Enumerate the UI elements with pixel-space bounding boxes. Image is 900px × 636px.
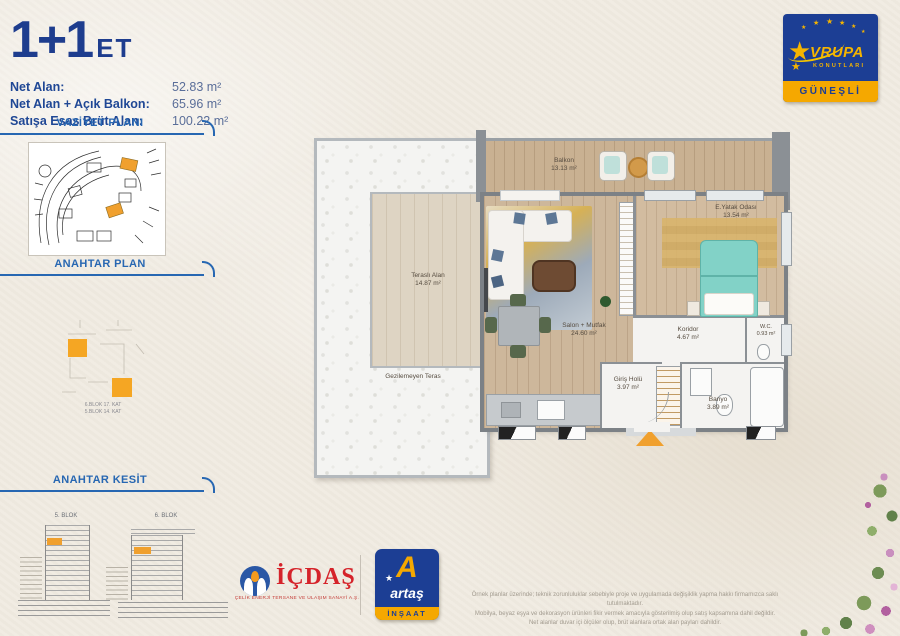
brand-name: VRUPA [810, 44, 864, 61]
star-icon: ★ [839, 19, 845, 27]
room-label: Giriş Holü 3.97 m² [602, 376, 654, 392]
section-title-anahtar-kesit: ANAHTAR KESİT [0, 474, 205, 486]
stove [501, 402, 521, 418]
section-rule [0, 490, 204, 492]
pillow [513, 212, 525, 224]
artas-sub: İNŞAAT [375, 607, 439, 620]
room-name: Giriş Holü [602, 376, 654, 384]
room-name: Koridor [653, 326, 723, 334]
icdas-name: İÇDAŞ [276, 564, 356, 591]
room-name: Salon + Mutfak [536, 322, 632, 330]
block-label-6: 6. BLOK [136, 513, 196, 519]
balcony-table [628, 157, 649, 178]
dining-table [498, 306, 540, 346]
star-icon: ★ [861, 29, 865, 35]
section-title-vaziyet: VAZİYET PLANI [0, 117, 205, 129]
chair-cushion [652, 156, 668, 174]
highlight-block-5 [106, 203, 124, 218]
icdas-tagline: ÇELİK ENERJİ TERSANE VE ULAŞIM SANAYİ A.… [234, 596, 360, 601]
room-area: 14.87 m² [378, 280, 478, 288]
avrupa-konutlari-logo: ★ ★ ★ ★ ★ ★ ★ ★ VRUPA KONUTLARI GÜNEŞLİ [783, 14, 878, 102]
key-plan-unit-1 [68, 339, 87, 357]
window-well [746, 426, 776, 440]
window-well [498, 426, 536, 440]
disclaimer: Örnek planlar üzerinde; teknik zorunlulu… [455, 591, 795, 628]
window-well [558, 426, 586, 440]
site-plan-drawing [29, 143, 165, 255]
nightstand [757, 301, 770, 316]
unit-type: 1+1 [10, 11, 92, 69]
star-icon: ★ [385, 573, 393, 584]
bathtub [750, 367, 784, 427]
section-base-6 [118, 602, 228, 618]
nightstand [687, 301, 700, 316]
brand-sub: KONUTLARI [813, 63, 865, 69]
page-title: 1+1ET [10, 10, 133, 70]
key-section: 5. BLOK 6. BLOK [18, 505, 228, 635]
bed-pillows [704, 293, 754, 315]
window [781, 212, 792, 266]
room-label: W.C. 0.93 m² [749, 324, 783, 338]
block-label-5: 5. BLOK [36, 513, 96, 519]
room-area: 13.54 m² [676, 212, 796, 220]
dining-chair [510, 345, 526, 358]
pillow [491, 249, 504, 262]
key-plan-note-line: 5.BLOK 14. KAT [58, 409, 148, 416]
room-label: Salon + Mutfak 24.60 m² [536, 322, 632, 338]
room-label: Teraslı Alan 14.87 m² [378, 272, 478, 288]
area-value: 65.96 m² [172, 97, 221, 111]
room-area: 0.93 m² [749, 331, 783, 338]
room-name: Balkon [524, 157, 604, 165]
chair-cushion [604, 156, 620, 174]
blanket-fold [701, 275, 757, 277]
room-name: E.Yatak Odası [676, 204, 796, 212]
room-area: 4.67 m² [653, 334, 723, 342]
site-plan [28, 142, 166, 256]
bed [700, 240, 758, 317]
balcony-chair [599, 151, 627, 181]
unit-type-suffix: ET [96, 33, 133, 63]
window [644, 190, 696, 201]
apartment-interior: Salon + Mutfak 24.60 m² E.Yatak Odası 13… [484, 196, 784, 428]
tv [484, 268, 488, 312]
highlight-block-6 [120, 157, 138, 171]
section-tower-5 [45, 525, 90, 600]
bathroom-sink [690, 368, 712, 396]
area-row-net-balkon: Net Alan + Açık Balkon: 65.96 m² [10, 97, 310, 114]
icdas-flame [251, 571, 259, 582]
key-plan-note-line: 6.BLOK 17. KAT [58, 402, 148, 409]
window [781, 324, 792, 356]
coffee-table [532, 260, 576, 292]
room-yatak-odasi: E.Yatak Odası 13.54 m² [633, 196, 784, 318]
room-label: Balkon 13.13 m² [524, 157, 604, 173]
room-name: Teraslı Alan [378, 272, 478, 280]
floor-labels [20, 557, 42, 601]
key-plan-note: 6.BLOK 17. KAT 5.BLOK 14. KAT [58, 402, 148, 416]
section-title-anahtar-plan: ANAHTAR PLAN [0, 258, 205, 270]
room-name: W.C. [749, 324, 783, 331]
window [706, 190, 764, 201]
star-icon: ★ [851, 23, 856, 30]
highlight-floor-5 [47, 538, 62, 545]
area-label: Net Alan: [10, 80, 64, 94]
room-label: Koridor 4.67 m² [653, 326, 723, 342]
toilet [757, 344, 770, 360]
brand-location: GÜNEŞLİ [783, 81, 878, 102]
section-tower-6 [131, 535, 183, 600]
icdas-logo-icon [240, 566, 270, 596]
room-koridor: Koridor 4.67 m² [633, 318, 745, 362]
dining-chair [485, 317, 497, 333]
section-base-5 [18, 600, 110, 618]
section-rule [0, 133, 204, 135]
area-row-net: Net Alan: 52.83 m² [10, 80, 310, 97]
room-area: 13.13 m² [524, 165, 604, 173]
room-label: E.Yatak Odası 13.54 m² [676, 204, 796, 220]
pillow [545, 212, 558, 225]
balcony-chair [647, 151, 675, 181]
highlight-floor-6 [134, 547, 151, 554]
footer-divider [360, 555, 361, 615]
artas-name: artaş [375, 585, 439, 601]
room-banyo: Banyo 3.89 m² [680, 362, 784, 428]
star-icon: ★ [826, 17, 833, 26]
key-plan: 6.BLOK 17. KAT 5.BLOK 14. KAT [28, 300, 178, 420]
room-label: Banyo 3.89 m² [696, 396, 740, 412]
room-wc: W.C. 0.93 m² [745, 318, 784, 362]
room-label: Gezilemeyen Teras [353, 373, 473, 381]
icdas-mark [257, 578, 266, 596]
room-terasli-alan: Teraslı Alan 14.87 m² [370, 192, 486, 368]
balcony-door [500, 190, 560, 201]
area-label: Net Alan + Açık Balkon: [10, 97, 150, 111]
section-roof-6 [131, 529, 195, 537]
floor-labels [106, 567, 128, 603]
star-icon: ★ [813, 19, 819, 27]
entrance-arrow-icon [636, 430, 664, 446]
disclaimer-line: Mobilya, beyaz eşya ve dekorasyon ürünle… [455, 610, 795, 619]
disclaimer-line: Net alanlar duvar içi ölçüler olup, brüt… [455, 619, 795, 628]
star-icon: ★ [801, 24, 806, 31]
kitchen-sink [537, 400, 565, 420]
room-area: 24.60 m² [536, 330, 632, 338]
kitchen-counter [486, 394, 602, 426]
floor-plan: Gezilemeyen Teras Teraslı Alan 14.87 m² … [310, 128, 792, 480]
area-value: 52.83 m² [172, 80, 221, 94]
entry-door-opening [634, 422, 670, 432]
room-area: 3.89 m² [696, 404, 740, 412]
key-plan-unit-2 [112, 378, 132, 397]
wall [476, 130, 486, 202]
brochure-page: 1+1ET Net Alan: 52.83 m² Net Alan + Açık… [0, 0, 900, 636]
section-rule [0, 274, 204, 276]
plant [600, 296, 611, 307]
room-name: Banyo [696, 396, 740, 404]
artas-logo: A ★ artaş İNŞAAT [375, 549, 439, 620]
disclaimer-line: Örnek planlar üzerinde; teknik zorunlulu… [455, 591, 795, 610]
